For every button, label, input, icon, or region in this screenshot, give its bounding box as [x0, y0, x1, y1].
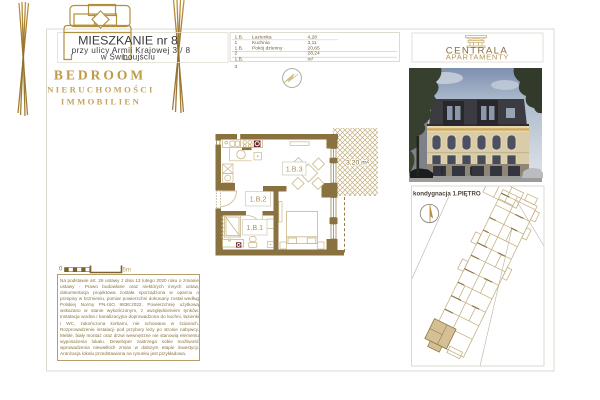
svg-text:1: 1 [235, 40, 238, 46]
svg-text:5m: 5m [123, 268, 131, 274]
svg-text:3,11: 3,11 [308, 40, 317, 46]
svg-text:IMMOBILIEN: IMMOBILIEN [61, 96, 141, 106]
svg-text:1.B.1: 1.B.1 [246, 223, 263, 232]
svg-text:Pokój dzienny: Pokój dzienny [252, 46, 283, 52]
svg-text:BEDROOM: BEDROOM [54, 68, 146, 83]
svg-text:20,65: 20,65 [308, 46, 321, 52]
svg-text:APARTAMENTY: APARTAMENTY [446, 53, 509, 62]
svg-text:NIERUCHOMOŚCI: NIERUCHOMOŚCI [47, 84, 155, 94]
svg-text:1.B.: 1.B. [235, 46, 244, 52]
svg-text:1.B.: 1.B. [235, 35, 244, 41]
svg-text:1.B.2: 1.B.2 [250, 195, 267, 204]
svg-text:Łazienka: Łazienka [252, 35, 272, 41]
svg-text:2: 2 [235, 51, 238, 57]
svg-text:3,20 m²: 3,20 m² [346, 160, 370, 167]
svg-text:Kuchnia: Kuchnia [252, 40, 270, 46]
svg-text:m²: m² [308, 56, 314, 62]
svg-text:w Świnoujściu: w Świnoujściu [100, 52, 155, 61]
svg-text:1.B.3: 1.B.3 [286, 164, 303, 173]
svg-text:0: 0 [59, 267, 63, 273]
svg-text:kondygnacja 1.PIĘTRO: kondygnacja 1.PIĘTRO [413, 190, 481, 197]
svg-text:28,24: 28,24 [308, 51, 321, 57]
svg-text:4,28: 4,28 [308, 35, 318, 41]
svg-text:1.B.: 1.B. [235, 56, 244, 62]
svg-text:3: 3 [235, 64, 238, 70]
